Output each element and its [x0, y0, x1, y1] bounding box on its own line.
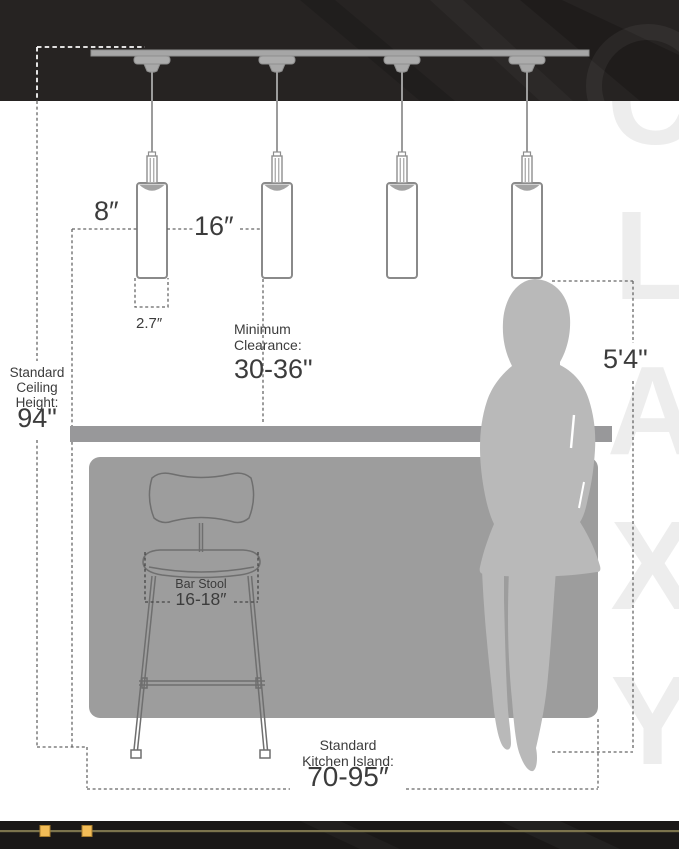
kitchen-island-label-block: Standard Kitchen Island: 70-95″: [281, 738, 415, 785]
pendant-width-label: 2.7″: [136, 315, 162, 332]
infographic-page: CLAXY: [0, 0, 679, 849]
island-value: 70-95″: [281, 769, 415, 785]
pendant-3: [387, 152, 417, 278]
pendant-1: [137, 152, 167, 278]
pendant-offset-label: 8″: [94, 196, 119, 227]
ceiling-height-block: Standard Ceiling Height: 94": [2, 365, 72, 426]
bar-stool-value: 16-18″: [151, 592, 251, 606]
ceiling-band: [0, 0, 679, 140]
ceiling-text-line2: Ceiling: [2, 380, 72, 395]
ceiling-value: 94": [2, 411, 72, 426]
pendant-4: [512, 152, 542, 278]
track-rail: [91, 50, 589, 56]
clearance-label-block: Minimum Clearance: 30-36": [234, 321, 354, 385]
pendant-2: [262, 152, 292, 278]
clearance-value: 30-36": [234, 354, 354, 385]
footer-accent-line: [0, 830, 679, 832]
clearance-text-line1: Minimum: [234, 321, 354, 337]
footer-gold-square-2: [82, 826, 92, 837]
bar-stool-label-block: Bar Stool 16-18″: [151, 577, 251, 606]
diagram-canvas: [0, 0, 679, 849]
person-height-label: 5'4": [603, 344, 648, 375]
ceiling-text-line1: Standard: [2, 365, 72, 380]
island-text-line1: Standard: [281, 738, 415, 754]
pendant-spacing-label: 16″: [194, 211, 234, 242]
footer-gold-square-1: [40, 826, 50, 837]
footer-band: [0, 821, 679, 849]
clearance-text-line2: Clearance:: [234, 337, 354, 353]
